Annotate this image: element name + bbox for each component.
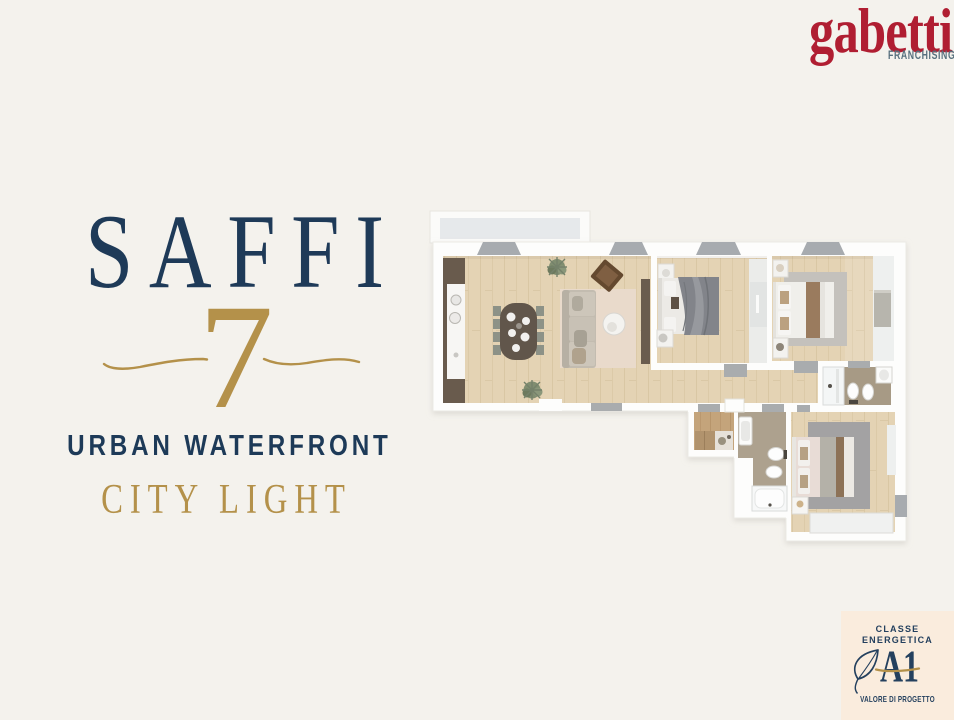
svg-text:A1: A1 <box>880 644 919 692</box>
